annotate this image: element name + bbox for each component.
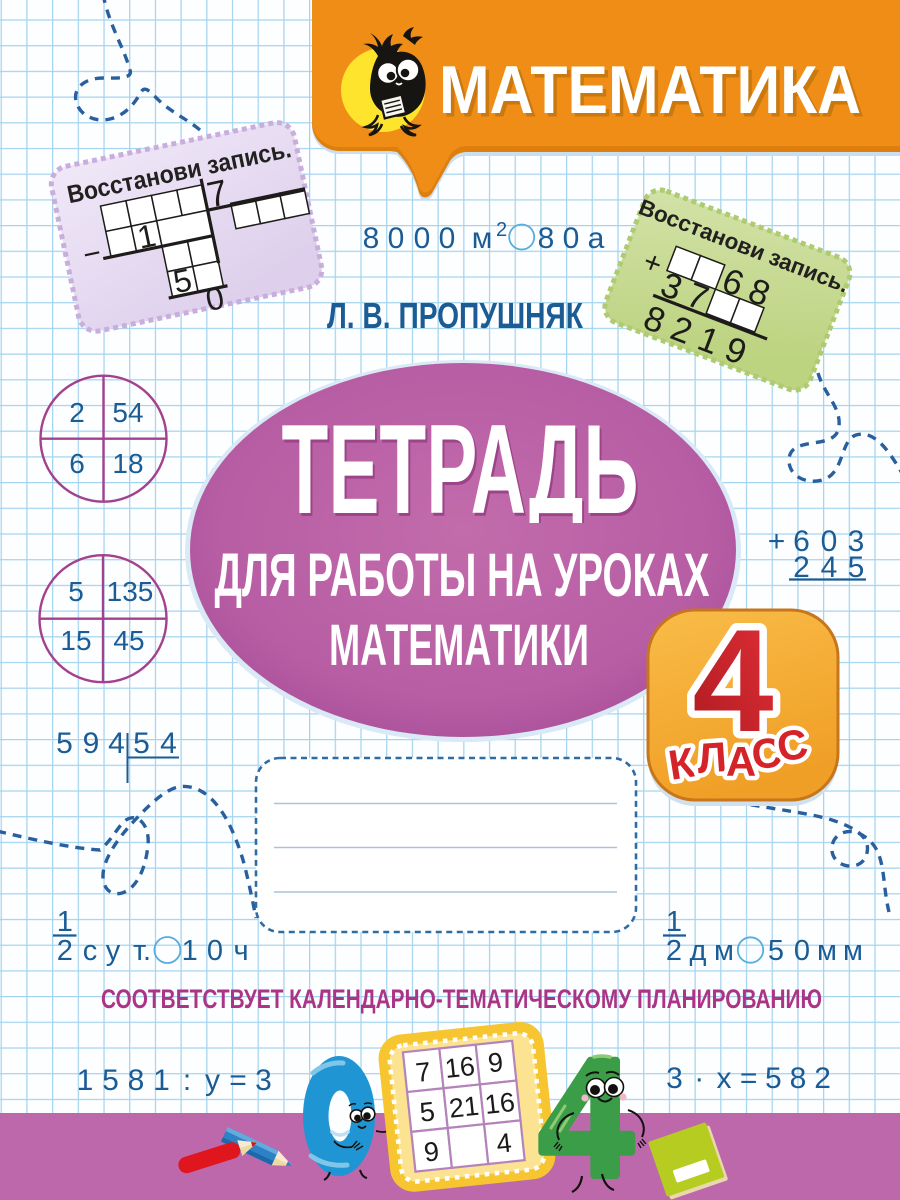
svg-text:16: 16: [483, 1087, 516, 1120]
svg-text:45: 45: [113, 625, 144, 656]
svg-text:а: а: [588, 222, 605, 255]
svg-text:1: 1: [666, 906, 682, 938]
svg-text:1: 1: [57, 906, 73, 938]
svg-text:с: с: [83, 935, 98, 967]
svg-text:у: у: [106, 935, 121, 967]
svg-text:4: 4: [540, 1026, 632, 1200]
svg-text:6: 6: [69, 448, 85, 479]
svg-text:2: 2: [666, 935, 682, 967]
svg-text:21: 21: [448, 1091, 481, 1124]
svg-text:5: 5: [68, 576, 84, 607]
svg-text:т.: т.: [133, 935, 151, 967]
svg-text:2: 2: [69, 397, 85, 428]
svg-text:д: д: [690, 935, 707, 967]
svg-text:4: 4: [495, 1128, 513, 1159]
svg-text:2: 2: [57, 935, 73, 967]
svg-text:МАТЕМАТИКА: МАТЕМАТИКА: [439, 52, 861, 128]
svg-text:18: 18: [112, 448, 143, 479]
svg-text:54: 54: [112, 397, 143, 428]
svg-text:СООТВЕТСТВУЕТ КАЛЕНДАРНО-ТЕМАТ: СООТВЕТСТВУЕТ КАЛЕНДАРНО-ТЕМАТИЧЕСКОМУ П…: [101, 984, 822, 1014]
svg-text:м: м: [472, 222, 493, 255]
svg-text:9: 9: [422, 1136, 440, 1167]
svg-text:135: 135: [107, 576, 154, 607]
svg-text:16: 16: [443, 1051, 476, 1084]
svg-text:594: 594: [56, 727, 125, 760]
svg-text:+: +: [768, 525, 786, 558]
svg-text:2: 2: [496, 219, 507, 241]
svg-text:5: 5: [418, 1096, 436, 1127]
svg-text:Л. В. ПРОПУШНЯК: Л. В. ПРОПУШНЯК: [327, 295, 584, 336]
svg-text:МАТЕМАТИКИ: МАТЕМАТИКИ: [329, 613, 589, 678]
svg-text:ч: ч: [233, 935, 248, 967]
svg-text:7: 7: [414, 1057, 432, 1088]
svg-text:ДЛЯ РАБОТЫ НА УРОКАХ: ДЛЯ РАБОТЫ НА УРОКАХ: [215, 541, 710, 609]
svg-text:15: 15: [60, 625, 91, 656]
svg-text:ТЕТРАДЬ: ТЕТРАДЬ: [282, 398, 639, 540]
svg-text:м: м: [714, 935, 734, 967]
svg-text:9: 9: [486, 1047, 504, 1078]
